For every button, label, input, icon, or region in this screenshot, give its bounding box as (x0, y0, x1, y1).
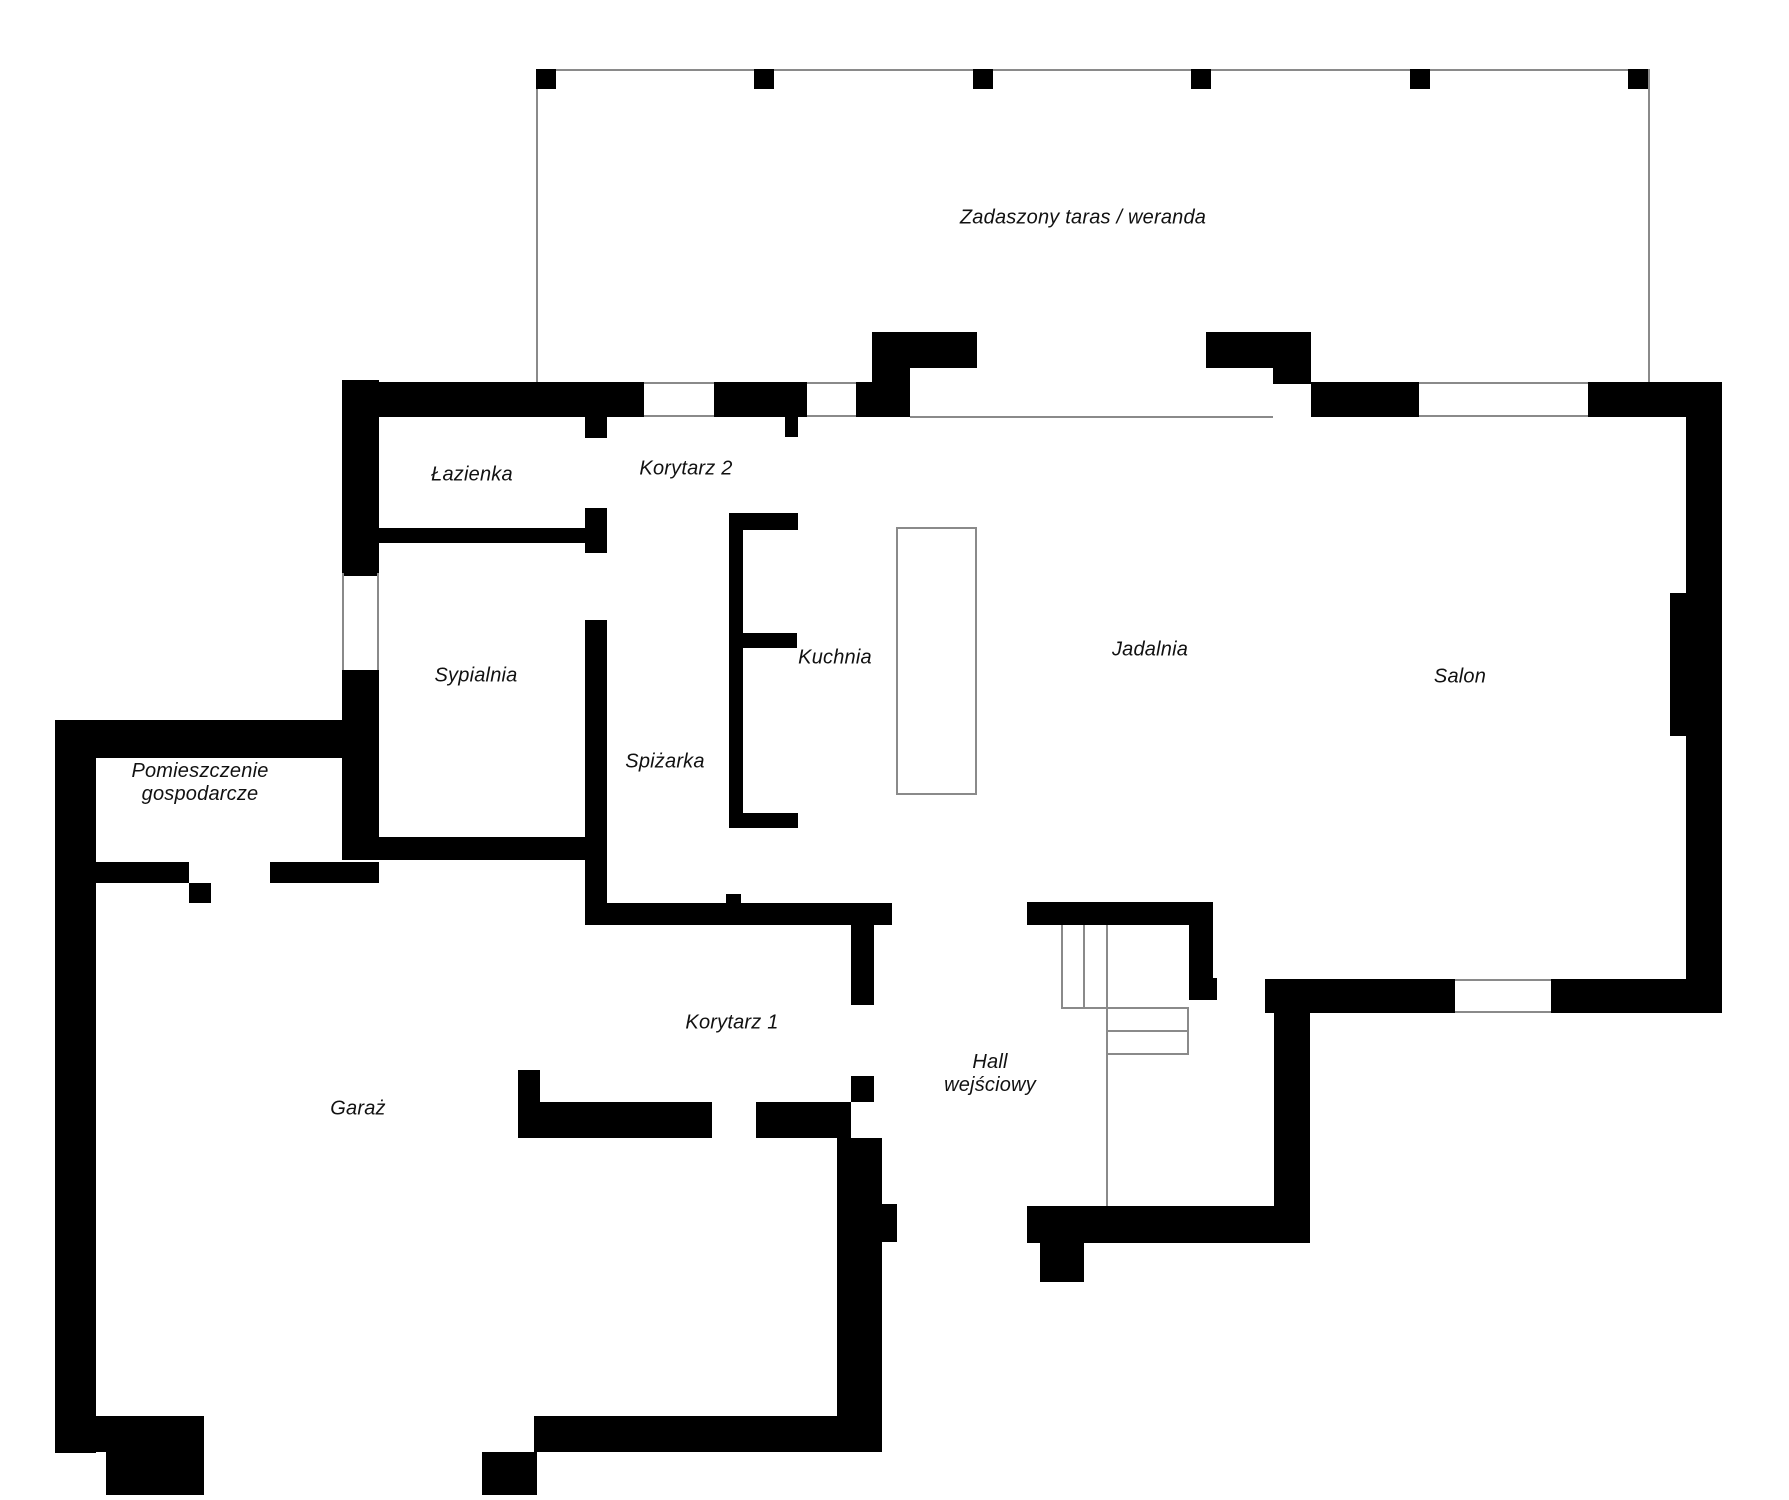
wall-segment (872, 332, 910, 387)
wall-segment (1686, 382, 1722, 1013)
terrace-column (1191, 69, 1211, 89)
wall-segment (1551, 979, 1722, 1013)
wall-segment (1670, 593, 1686, 736)
thin-line (1083, 925, 1085, 1009)
wall-segment (756, 1102, 851, 1138)
wall-segment (714, 382, 807, 417)
room-label-bedroom: Sypialnia (435, 665, 518, 688)
wall-segment (55, 720, 379, 758)
thin-line (1648, 69, 1650, 382)
wall-segment (1206, 332, 1311, 368)
wall-segment (1189, 925, 1213, 978)
thin-line (1455, 1011, 1551, 1013)
room-label-bathroom: Łazienka (431, 464, 513, 487)
wall-segment (585, 620, 607, 925)
thin-line (910, 416, 1273, 418)
thin-line (644, 415, 714, 417)
wall-segment (729, 813, 798, 828)
thin-line (1061, 1007, 1189, 1009)
terrace-column (536, 69, 556, 89)
wall-segment (270, 862, 379, 883)
room-label-utility-line-2: gospodarcze (131, 783, 268, 806)
thin-line (1106, 925, 1108, 1206)
wall-segment (726, 894, 741, 903)
wall-segment (851, 1076, 874, 1102)
wall-segment (1027, 1206, 1310, 1243)
thin-line (1419, 382, 1588, 384)
wall-segment (96, 862, 189, 883)
room-label-corridor2: Korytarz 2 (639, 458, 732, 481)
wall-segment (377, 528, 585, 543)
room-label-dining: Jadalnia (1112, 639, 1188, 662)
room-label-corridor1: Korytarz 1 (685, 1012, 778, 1035)
room-label-utility-line-1: Pomieszczenie (131, 760, 268, 783)
floor-plan: Zadaszony taras / werandaŁazienkaKorytar… (0, 0, 1789, 1500)
wall-segment (856, 382, 910, 417)
wall-segment (785, 417, 798, 437)
room-label-hall-line-1: Hall (944, 1051, 1036, 1074)
thin-line (342, 573, 344, 670)
room-label-living: Salon (1434, 666, 1486, 689)
terrace-column (1410, 69, 1430, 89)
wall-segment (534, 1416, 882, 1452)
wall-segment (837, 1138, 882, 1416)
room-label-pantry: Spiżarka (625, 751, 704, 774)
wall-segment (585, 417, 607, 438)
thin-line (1419, 415, 1588, 417)
wall-segment (874, 1204, 897, 1242)
wall-segment (518, 1102, 712, 1138)
wall-segment (1040, 1243, 1084, 1282)
terrace-column (1628, 69, 1648, 89)
wall-segment (585, 508, 607, 553)
thin-line (536, 69, 1649, 71)
thin-line (807, 415, 856, 417)
wall-segment (342, 670, 379, 860)
room-label-terrace: Zadaszony taras / weranda (960, 207, 1206, 230)
wall-segment (1189, 978, 1217, 1000)
room-label-hall-line-2: wejściowy (944, 1074, 1036, 1097)
thin-line (1187, 1009, 1189, 1055)
room-label-hall: Hallwejściowy (944, 1051, 1036, 1097)
room-label-garage: Garaż (330, 1098, 385, 1121)
wall-segment (106, 1452, 204, 1495)
wall-segment (518, 1070, 540, 1102)
thin-line (1106, 1053, 1189, 1055)
thin-line (1061, 925, 1063, 1009)
wall-segment (1027, 902, 1213, 925)
wall-segment (729, 513, 743, 813)
wall-segment (189, 883, 211, 903)
wall-segment (482, 1452, 537, 1495)
wall-segment (342, 382, 644, 417)
kitchen-island (896, 527, 977, 795)
wall-segment (342, 837, 607, 860)
thin-line (807, 382, 856, 384)
wall-segment (1273, 368, 1311, 384)
wall-segment (1311, 382, 1419, 417)
room-label-kitchen: Kuchnia (798, 647, 872, 670)
terrace-column (973, 69, 993, 89)
wall-segment (55, 720, 96, 1453)
thin-line (1455, 979, 1551, 981)
thin-line (536, 69, 538, 382)
wall-segment (585, 903, 892, 925)
wall-segment (1265, 979, 1455, 1013)
wall-segment (55, 1416, 204, 1452)
thin-line (644, 382, 714, 384)
terrace-column (754, 69, 774, 89)
room-label-utility: Pomieszczeniegospodarcze (131, 760, 268, 806)
thin-line (1106, 1030, 1189, 1032)
wall-segment (851, 925, 874, 1005)
thin-line (377, 573, 379, 670)
wall-segment (743, 633, 797, 648)
